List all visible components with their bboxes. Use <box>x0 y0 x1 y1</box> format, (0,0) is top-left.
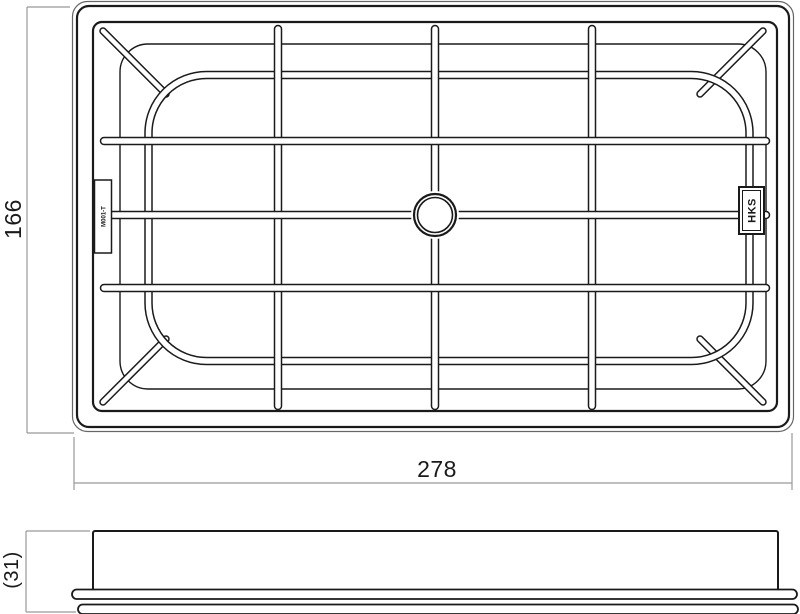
height-dimension-label: 166 <box>0 199 26 239</box>
part-code-tab: M001-T <box>95 180 112 253</box>
part-code-text: M001-T <box>102 206 108 227</box>
side-view-body <box>93 531 778 597</box>
center-hole <box>411 191 459 239</box>
air-filter-drawing: M001-T HKS 166 278 (31) <box>0 0 800 614</box>
dimension-height: 166 <box>0 7 74 433</box>
brace-top-left-core <box>103 31 166 94</box>
logo-text: HKS <box>747 198 759 223</box>
thickness-dimension-label: (31) <box>1 551 23 589</box>
side-view-gasket-strip-2 <box>78 605 798 614</box>
brace-bottom-left-core <box>103 339 166 402</box>
brace-top-right-core <box>700 31 763 94</box>
side-view-gasket-strip-1 <box>72 590 797 600</box>
technical-drawing-page: M001-T HKS 166 278 (31) <box>0 0 800 614</box>
top-view: M001-T HKS <box>73 2 794 432</box>
side-view <box>72 531 798 614</box>
width-dimension-label: 278 <box>417 456 457 482</box>
dimensions: 166 278 (31) <box>0 7 792 612</box>
logo-tab: HKS <box>739 187 764 234</box>
dimension-width: 278 <box>74 433 792 490</box>
